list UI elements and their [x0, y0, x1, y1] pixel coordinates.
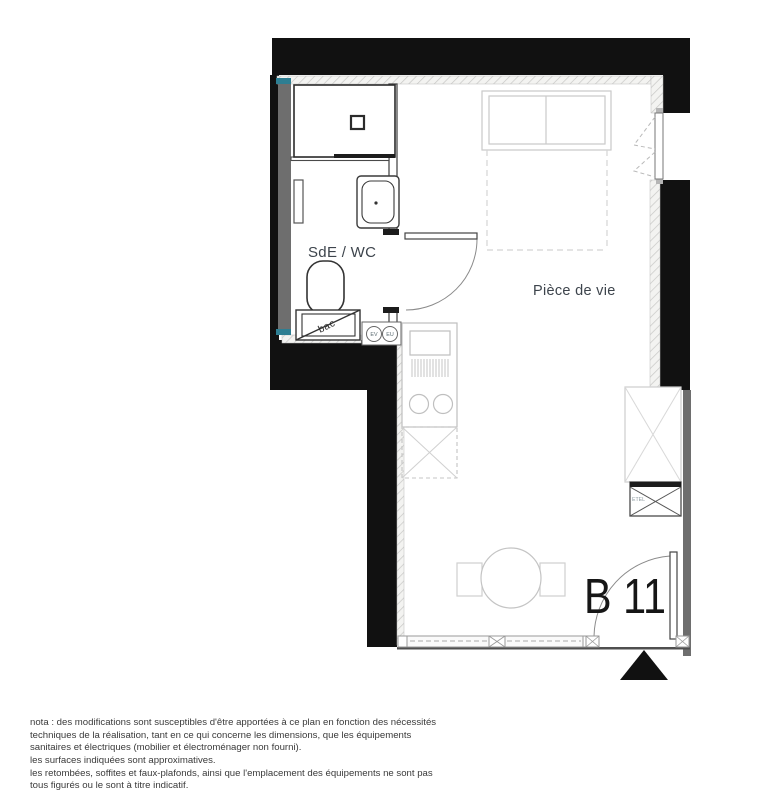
bathroom-label: SdE / WC — [308, 244, 376, 261]
electrical-panel: ETEL — [630, 482, 681, 516]
window-east — [634, 108, 663, 184]
note-line: tous figurés ou le sont à titre indicati… — [30, 780, 370, 793]
note-line: les surfaces indiquées sont approximativ… — [30, 755, 370, 768]
bathroom-door — [405, 233, 477, 310]
washing-machine-slot: bac — [296, 310, 360, 340]
door-leaf — [405, 233, 477, 239]
drain-points: EV EU — [362, 322, 401, 345]
chair — [540, 563, 565, 596]
ev-label: EV — [370, 332, 378, 338]
round-table — [481, 548, 541, 608]
shower-drain-icon — [351, 116, 364, 129]
note-line: les retombées, soffites et faux-plafonds… — [30, 768, 370, 781]
washbasin — [357, 176, 399, 228]
kitchen-drainer — [411, 359, 450, 377]
kitchen-unit — [402, 323, 457, 427]
radiator — [294, 180, 303, 223]
eu-label: EU — [386, 332, 394, 338]
floor-plan: bac EV EU ETEL — [0, 0, 759, 800]
window-south — [397, 636, 690, 650]
unit-number-label: B 11 — [584, 570, 666, 624]
fridge-slot — [402, 427, 457, 478]
floor-plan-drawing: bac EV EU ETEL — [0, 0, 759, 800]
wardrobe — [625, 387, 681, 482]
chair — [457, 563, 482, 596]
dining-set — [457, 548, 565, 608]
teal-accent-top — [276, 78, 291, 84]
teal-accent-bottom — [276, 329, 291, 335]
note-line: sanitaires et électriques (mobilier et é… — [30, 742, 370, 755]
etel-label: ETEL — [632, 497, 645, 503]
note-line: techniques de la réalisation, tant en ce… — [30, 730, 370, 743]
note-line: nota : des modifications sont susceptibl… — [30, 717, 370, 730]
shower — [294, 85, 395, 158]
sofa-bed — [482, 91, 611, 250]
door-leaf — [670, 552, 677, 639]
living-room-label: Pièce de vie — [533, 283, 616, 299]
toilet — [307, 261, 344, 314]
entrance-arrow-icon — [620, 650, 668, 680]
disclaimer-note: nota : des modifications sont susceptibl… — [30, 717, 370, 793]
